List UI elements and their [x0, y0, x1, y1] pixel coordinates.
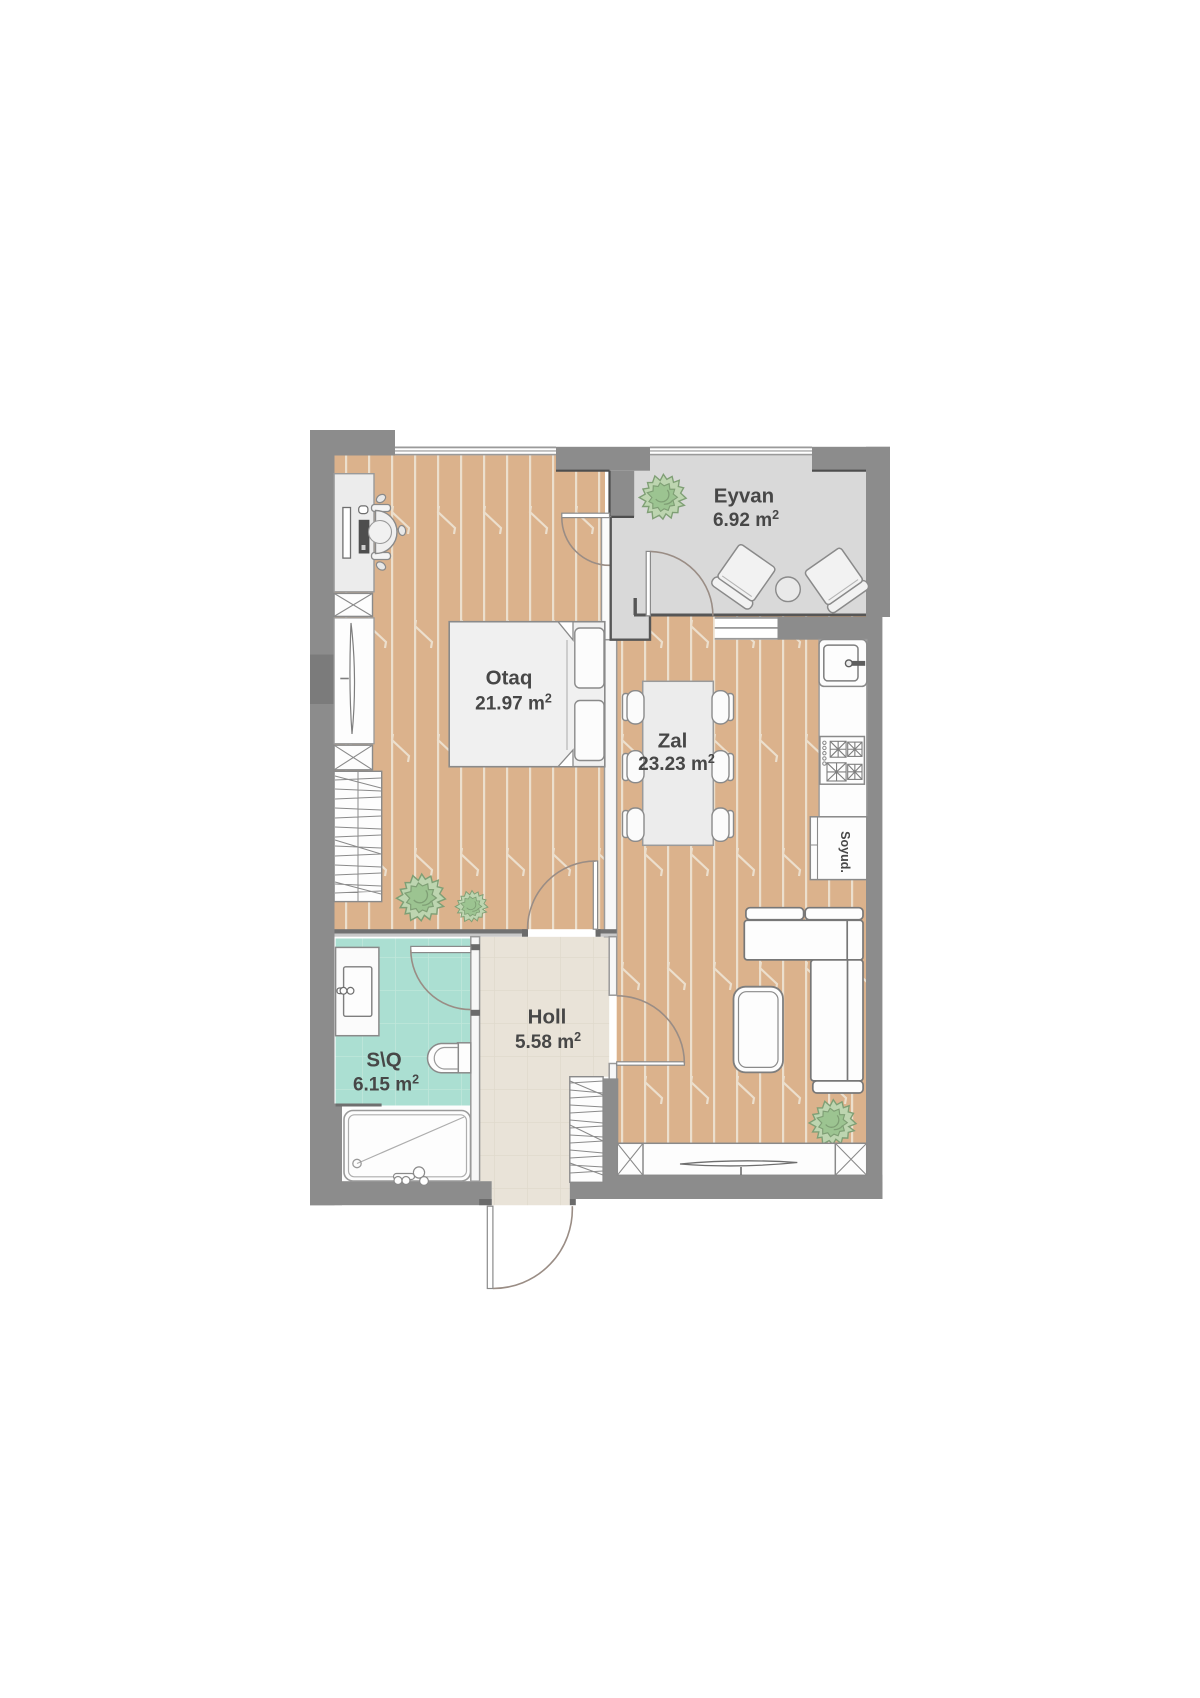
svg-text:S\Q: S\Q — [366, 1049, 401, 1072]
svg-text:5.58 m2: 5.58 m2 — [515, 1030, 581, 1053]
svg-text:21.97 m2: 21.97 m2 — [475, 692, 552, 715]
svg-text:Otaq: Otaq — [486, 667, 533, 690]
svg-text:Holl: Holl — [528, 1006, 567, 1029]
svg-text:Eyvan: Eyvan — [714, 485, 774, 508]
svg-text:Zal: Zal — [658, 730, 688, 753]
svg-text:6.92 m2: 6.92 m2 — [713, 508, 779, 531]
svg-text:23.23 m2: 23.23 m2 — [638, 752, 715, 775]
svg-text:Soyud.: Soyud. — [838, 831, 852, 873]
svg-text:6.15 m2: 6.15 m2 — [353, 1073, 419, 1096]
